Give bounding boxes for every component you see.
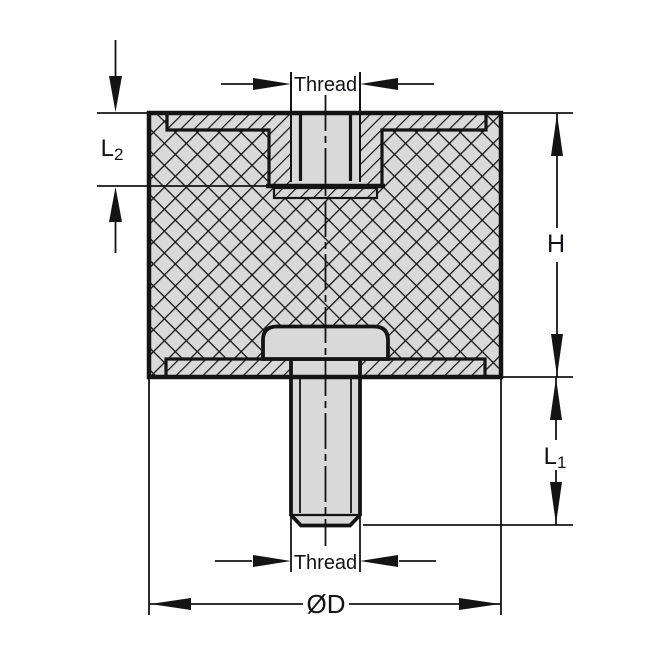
arrowhead-up-icon [550, 378, 562, 420]
arrowhead-up-icon [109, 187, 122, 222]
dimension-l1: L1 [363, 377, 573, 525]
arrowhead-right-icon [253, 78, 291, 90]
arrowhead-up-icon [551, 114, 563, 156]
diameter-label: ØD [307, 589, 346, 619]
l1-label: L1 [544, 443, 567, 472]
arrowhead-down-icon [551, 334, 563, 376]
arrowhead-left-icon [150, 598, 191, 610]
h-label: H [547, 230, 565, 258]
mount-cross-section-drawing: Thread L2 H L1 Thread [0, 0, 670, 670]
arrowhead-left-icon [360, 78, 398, 90]
arrowhead-right-icon [253, 555, 291, 567]
dimension-h: H [503, 113, 573, 377]
dimension-thread-top: Thread [221, 74, 434, 96]
l2-label: L2 [101, 135, 124, 164]
thread-top-label: Thread [294, 74, 357, 96]
arrowhead-down-icon [550, 482, 562, 524]
thread-bottom-label: Thread [294, 552, 357, 574]
arrowhead-left-icon [360, 555, 398, 567]
technical-drawing-page: Thread L2 H L1 Thread [0, 0, 670, 670]
arrowhead-down-icon [109, 76, 122, 112]
arrowhead-right-icon [459, 598, 500, 610]
